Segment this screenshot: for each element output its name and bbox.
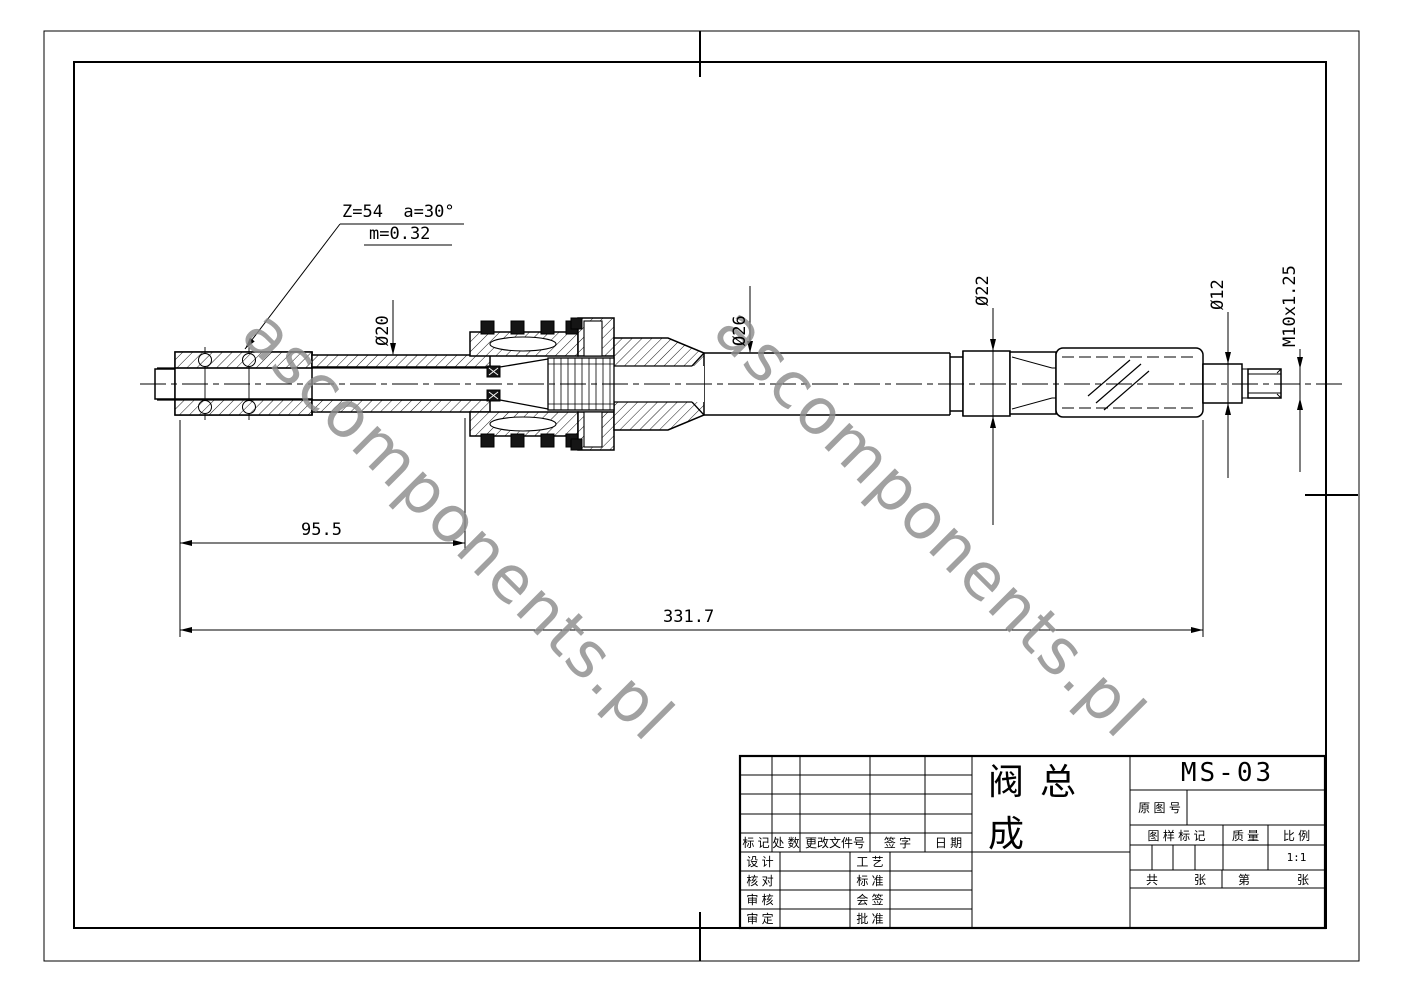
role-countersign: 会 签 (850, 890, 890, 909)
sheets-total-cell: 共 张 (1130, 870, 1222, 888)
role-ratify: 批 准 (850, 909, 890, 928)
sheets-total-suffix: 张 (1194, 871, 1206, 888)
dim-label-d12: Ø12 (1209, 279, 1228, 310)
drawing-number: MS-03 (1130, 756, 1325, 790)
inner-seal (487, 366, 500, 401)
threaded-end (1203, 364, 1281, 403)
dim-label-thread: M10x1.25 (1281, 265, 1300, 347)
sheet-number-prefix: 第 (1238, 871, 1250, 888)
rev-header-date: 日 期 (925, 833, 972, 852)
drawing-sheet: ascomponents.pl ascomponents.pl Z=54 a=3… (0, 0, 1403, 992)
spline-note-line2: m=0.32 (369, 225, 430, 244)
spline-sleeve (175, 347, 312, 420)
role-process: 工 艺 (850, 852, 890, 871)
sheet-number-cell: 第 张 (1222, 870, 1325, 888)
rev-header-count: 处 数 (772, 833, 800, 852)
dim-label-331: 331.7 (663, 608, 714, 627)
original-no-label: 原 图 号 (1132, 790, 1187, 825)
rev-header-mark: 标 记 (740, 833, 772, 852)
role-design: 设 计 (740, 852, 780, 871)
spline-note-line1: Z=54 a=30° (342, 203, 455, 222)
role-check: 核 对 (740, 871, 780, 890)
knurled-section (1056, 348, 1203, 417)
pattern-mark-label: 图 样 标 记 (1130, 825, 1223, 845)
part-name: 阀总成 (972, 770, 1130, 840)
role-review: 审 核 (740, 890, 780, 909)
sheet-number-suffix: 张 (1297, 871, 1309, 888)
shaft-d22 (950, 351, 1056, 416)
rev-header-docno: 更改文件号 (800, 833, 870, 852)
dim-label-95: 95.5 (301, 521, 342, 540)
mass-label: 质 量 (1223, 825, 1268, 845)
dim-label-d22: Ø22 (974, 275, 993, 306)
role-standard: 标 准 (850, 871, 890, 890)
sheets-total-prefix: 共 (1146, 871, 1158, 888)
role-approve-final: 审 定 (740, 909, 780, 928)
rev-header-sign: 签 字 (870, 833, 925, 852)
scale-label: 比 例 (1268, 825, 1325, 845)
dim-label-d20: Ø20 (374, 315, 393, 346)
dimension-lines (180, 224, 1303, 637)
dim-label-d26: Ø26 (731, 315, 750, 346)
scale-value: 1:1 (1268, 845, 1325, 870)
